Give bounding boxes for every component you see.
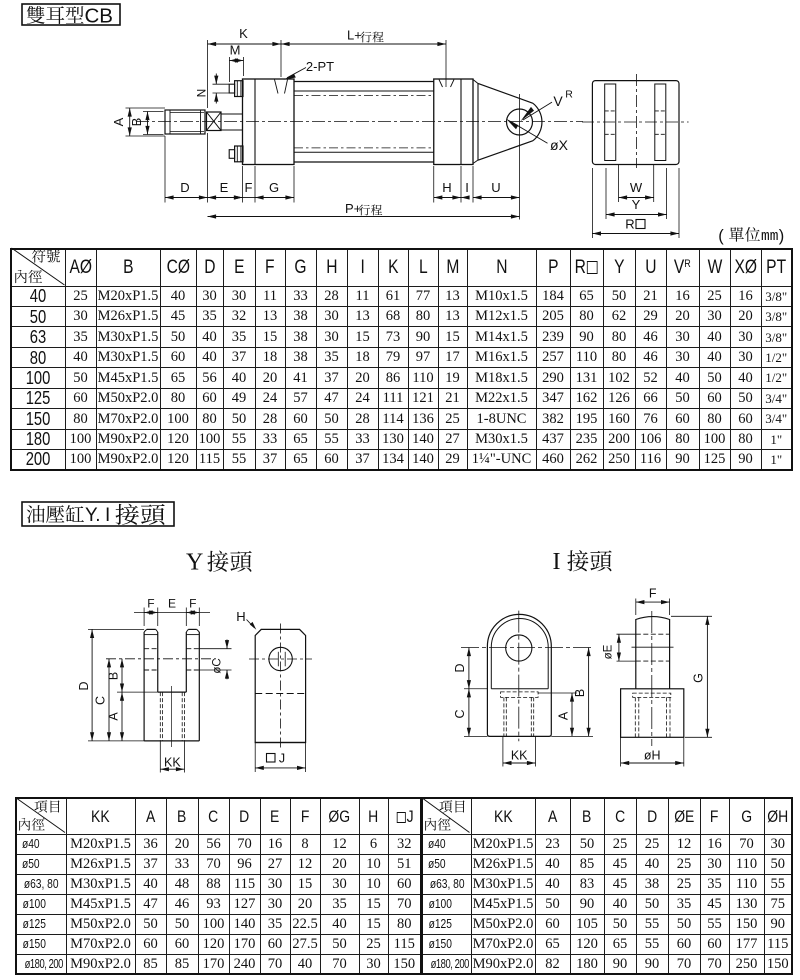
svg-text:KK: KK (511, 749, 528, 763)
svg-text:KK: KK (164, 756, 181, 770)
svg-text:J: J (279, 752, 285, 766)
svg-text:D: D (453, 663, 467, 672)
svg-text:B: B (107, 672, 121, 680)
svg-text:I: I (105, 505, 110, 526)
svg-text:F: F (649, 587, 657, 601)
svg-text:U: U (491, 180, 500, 195)
svg-text:W: W (630, 180, 643, 195)
svg-text:Y: Y (632, 197, 641, 212)
svg-text:G: G (692, 673, 706, 683)
svg-text:P+: P+ (345, 201, 361, 216)
svg-text:H: H (442, 180, 451, 195)
svg-text:E: E (168, 597, 176, 611)
svg-text:D: D (180, 180, 189, 195)
svg-text:øE: øE (603, 644, 615, 659)
svg-text:M: M (230, 43, 241, 58)
svg-text:C: C (453, 709, 467, 718)
svg-text:2-PT: 2-PT (306, 59, 334, 74)
svg-text:H: H (236, 609, 245, 624)
svg-text:Y.: Y. (85, 505, 101, 526)
svg-text:øX: øX (550, 137, 569, 153)
svg-text:A: A (557, 711, 571, 720)
svg-text:øC: øC (212, 658, 224, 673)
svg-text:I: I (553, 549, 561, 575)
svg-text:øH: øH (644, 749, 661, 763)
svg-text:V: V (553, 93, 563, 109)
svg-text:N: N (195, 89, 209, 98)
svg-text:R: R (565, 89, 573, 101)
svg-text:(: ( (718, 227, 724, 245)
svg-text:B: B (129, 118, 144, 127)
svg-text:mm: mm (761, 229, 778, 245)
svg-text:R: R (625, 217, 634, 232)
svg-text:D: D (77, 681, 91, 690)
svg-text:I: I (465, 180, 469, 195)
svg-text:G: G (269, 180, 279, 195)
svg-text:CB: CB (85, 5, 113, 28)
svg-text:K: K (239, 26, 248, 41)
svg-text:L+: L+ (347, 28, 362, 43)
svg-text:A: A (111, 117, 126, 126)
svg-text:E: E (220, 180, 229, 195)
svg-text:Y: Y (186, 550, 203, 576)
svg-text:C: C (94, 696, 108, 705)
svg-text:): ) (779, 227, 785, 245)
svg-text:F: F (245, 180, 253, 195)
svg-text:A: A (107, 712, 121, 721)
svg-text:F: F (147, 597, 154, 611)
svg-text:F: F (189, 597, 196, 611)
